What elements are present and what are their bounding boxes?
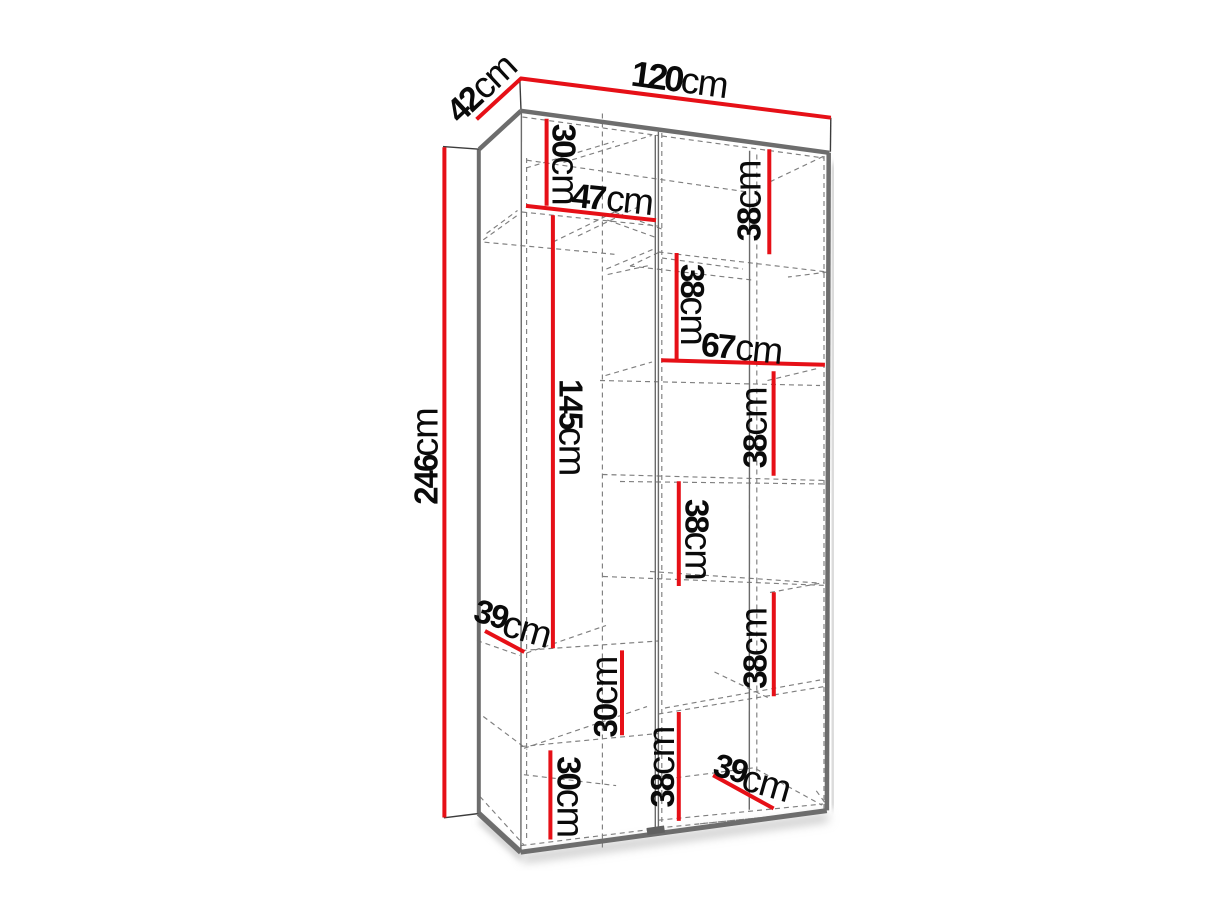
svg-text:38: 38 [736,434,773,468]
svg-text:cm: cm [498,603,556,657]
svg-text:38: 38 [674,264,711,298]
svg-text:30: 30 [587,704,624,737]
svg-text:cm: cm [405,408,447,456]
svg-text:38: 38 [644,773,681,807]
svg-text:cm: cm [549,789,591,837]
svg-text:cm: cm [679,59,730,106]
svg-text:cm: cm [584,657,626,705]
svg-text:cm: cm [641,727,683,775]
svg-text:cm: cm [677,532,719,580]
svg-text:47: 47 [570,177,608,218]
svg-text:145: 145 [552,379,589,430]
svg-text:246: 246 [408,454,445,505]
svg-text:cm: cm [604,177,654,223]
svg-text:cm: cm [727,161,769,209]
svg-text:30: 30 [546,124,583,157]
svg-text:cm: cm [733,388,775,436]
svg-text:cm: cm [734,608,776,656]
svg-text:cm: cm [737,757,795,811]
svg-text:30: 30 [551,756,588,789]
svg-text:38: 38 [679,499,716,533]
svg-text:cm: cm [733,326,783,372]
svg-text:38: 38 [730,207,767,241]
svg-text:120: 120 [629,53,686,101]
svg-text:cm: cm [550,427,592,475]
svg-text:38: 38 [737,654,774,688]
svg-text:67: 67 [699,326,737,367]
